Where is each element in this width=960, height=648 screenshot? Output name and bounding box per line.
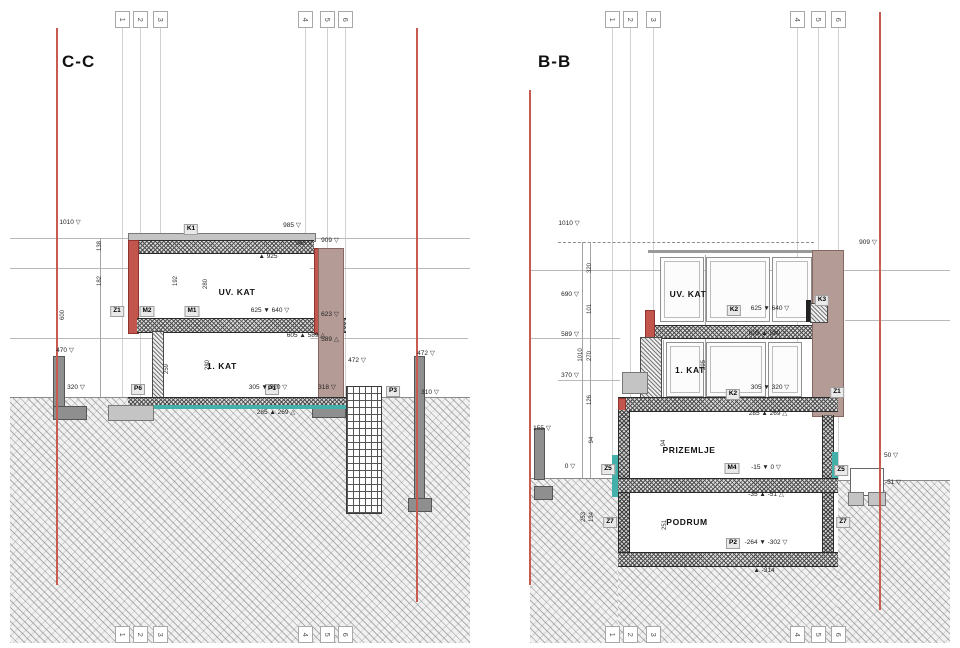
level-mark-625-640: 625 ▼ 640 ▽ [251,308,290,315]
level-mark-15-0: -15 ▼ 0 ▽ [751,465,781,472]
grid-bubble-1: 1 [605,626,620,643]
level-mark-51: -51 ▽ [885,480,901,487]
element-tag-k2: K2 [726,389,740,400]
level-mark-925: ▲ 925 [258,254,277,261]
grid-bubble-1: 1 [115,626,130,643]
level-mark-605-589: 605 ▲ 589 △ [287,333,326,340]
level-mark-285-269: 285 ▲ 269 △ [749,411,788,418]
grid-bubble-3: 3 [153,626,168,643]
level-mark-285-269: 285 ▲ 269 △ [257,410,296,417]
dim-text-270: 270 [587,351,593,361]
level-mark-318: 318 ▽ [318,385,336,392]
element-tag-k3: K3 [815,295,829,306]
grid-bubble-4: 4 [790,626,805,643]
grid-bubble-5: 5 [811,626,826,643]
level-mark-155: 155 ▽ [533,426,551,433]
grid-bubble-6: 6 [338,626,353,643]
level-mark-264-302: -264 ▼ -302 ▽ [745,540,788,547]
dim-text-182: 182 [97,276,103,286]
annotation-layer: K1Z1M2M1P6P1P3UV. KAT1. KAT1010 ▽985 ▽94… [0,0,960,648]
level-mark-50: 50 ▽ [884,453,898,460]
dim-text-101: 101 [587,304,593,314]
level-mark-1010: 1010 ▽ [59,220,80,227]
dim-text-280: 280 [203,279,209,289]
dim-text-295: 295 [701,360,707,370]
element-tag-m2: M2 [139,306,154,317]
element-tag-p2: P2 [726,538,740,549]
element-tag-z5: Z5 [834,465,848,476]
element-tag-z1: Z1 [110,306,124,317]
level-mark-690: 690 ▽ [561,292,579,299]
grid-bubble-5: 5 [320,11,335,28]
level-mark-909: 909 ▽ [321,238,339,245]
grid-bubble-3: 3 [646,11,661,28]
grid-bubble-4: 4 [298,626,313,643]
room-label-podrum: PODRUM [666,518,707,527]
level-mark-310: 310 ▽ [421,390,439,397]
level-mark-472: 472 ▽ [348,358,366,365]
level-mark-305-320: 305 ▼ 320 ▽ [751,385,790,392]
grid-bubble-1: 1 [605,11,620,28]
level-mark-605-589: 605 ▲ 589 △ [749,331,788,338]
dim-text-259: 259 [164,364,170,374]
grid-bubble-2: 2 [623,11,638,28]
element-tag-k1: K1 [184,224,198,235]
grid-bubble-6: 6 [831,626,846,643]
dim-text-280: 280 [205,360,211,370]
element-tag-z5: Z5 [601,464,615,475]
dim-text-94: 94 [661,440,667,447]
level-mark-370: 370 ▽ [561,373,579,380]
level-mark-35-51: -35 ▲ -51 △ [748,492,784,499]
dim-text-192: 192 [173,276,179,286]
dim-text-134: 134 [589,512,595,522]
element-tag-k2: K2 [727,305,741,316]
room-label-1-kat: 1. KAT [207,362,237,371]
element-tag-z7: Z7 [836,517,850,528]
element-tag-p3: P3 [386,386,400,397]
dim-text-94: 94 [589,437,595,444]
level-mark-589: 589 ▽ [561,332,579,339]
element-tag-p6: P6 [131,384,145,395]
level-mark-470: 470 ▽ [56,348,74,355]
element-tag-z7: Z7 [603,517,617,528]
level-mark-320: 320 ▽ [67,385,85,392]
grid-bubble-3: 3 [153,11,168,28]
dim-text-253: 253 [581,512,587,522]
room-label-uv-kat: UV. KAT [219,288,256,297]
grid-bubble-2: 2 [133,11,148,28]
room-label-uv-kat: UV. KAT [670,290,707,299]
grid-bubble-4: 4 [298,11,313,28]
dim-text-320: 320 [587,263,593,273]
grid-bubble-3: 3 [646,626,661,643]
element-tag-z1: Z1 [830,387,844,398]
level-mark-0: 0 ▽ [565,464,575,471]
grid-bubble-2: 2 [133,626,148,643]
grid-bubble-5: 5 [811,11,826,28]
grid-bubble-2: 2 [623,626,638,643]
room-label-prizemlje: PRIZEMLJE [662,446,715,455]
dim-text-1010: 1010 [578,348,584,361]
grid-bubble-6: 6 [831,11,846,28]
level-mark-305-320: 305 ▼ 320 ▽ [249,385,288,392]
level-mark-985: 985 ▽ [283,223,301,230]
level-mark-472: 472 ▽ [417,351,435,358]
grid-bubble-1: 1 [115,11,130,28]
level-mark-1010: 1010 ▽ [558,221,579,228]
dim-text-600: 600 [60,310,66,320]
dim-text-138: 138 [97,241,103,251]
grid-bubble-4: 4 [790,11,805,28]
dim-text-126: 126 [587,395,593,405]
drawing-canvas: C-C B-B [0,0,960,648]
level-mark-623: 623 ▽ [321,312,339,319]
level-mark-909: 909 ▽ [859,240,877,247]
grid-bubble-6: 6 [338,11,353,28]
level-mark-625-640: 625 ▼ 640 ▽ [751,306,790,313]
dim-text-251: 251 [662,520,668,530]
level-mark-314: ▲ -314 [753,568,774,575]
element-tag-m4: M4 [724,463,739,474]
grid-bubble-5: 5 [320,626,335,643]
level-mark-948: 948 ▽ [295,241,313,248]
element-tag-m1: M1 [184,306,199,317]
